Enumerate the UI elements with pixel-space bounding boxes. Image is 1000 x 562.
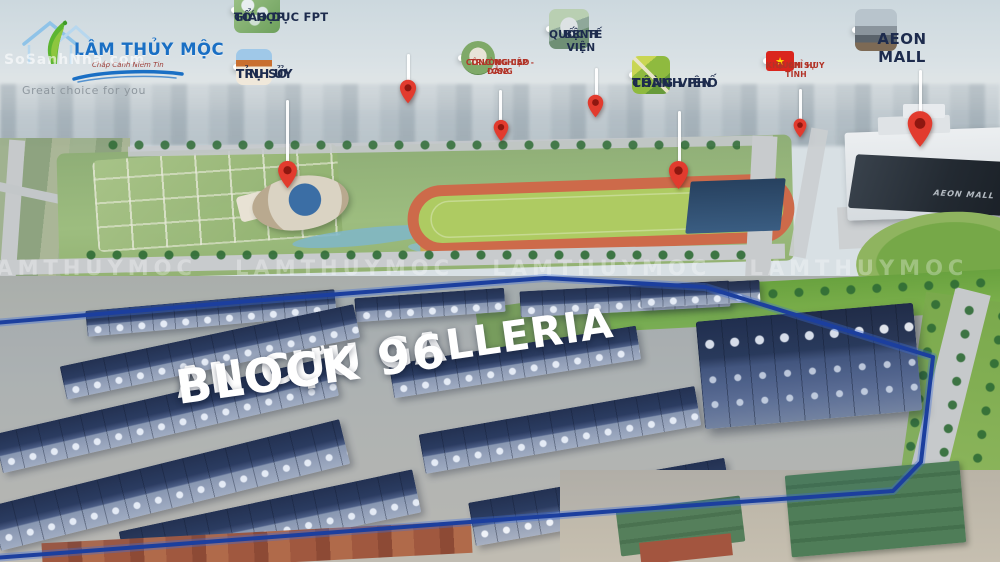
connector-line [919,70,922,113]
landmark-label-provincial-headquarters: TRỤ SỞ TỈNH ỦY [233,64,246,70]
aeon-mall-facade-text: AEON MALL [933,188,996,200]
connector-line [407,54,410,82]
map-pin-icon [587,94,604,118]
glass-building [685,178,785,234]
agency-tagline: Great choice for you [22,84,146,97]
connector-line [286,100,289,162]
map-pin-icon [277,160,298,189]
landmark-label-industrial-college: TRƯỜNG CAO ĐẲNG CÔNG NGHIỆP - CS2 [458,55,471,61]
connector-line [595,68,598,96]
landmark-label-aeon-mall: AEON MALL [852,27,865,33]
landmark-label-fpt-education-complex: TỔ HỢP GIÁO DỤC FPT [231,7,244,13]
landmark-label-city-park: CÔNG VIÊN THÀNH PHỐ [629,72,642,78]
aerial-photo-scene: AEON MALL LAMTHUYMOC LAMTHUYMOC LAMTHUYM… [0,0,1000,562]
connector-line [799,89,802,120]
connector-line [499,90,502,121]
tree-row [100,138,740,151]
map-pin-icon [399,79,417,104]
map-pin-icon [493,119,509,142]
map-pin-icon [668,160,689,190]
connector-line [678,111,681,163]
aeon-mall-glass-facade: AEON MALL [848,154,1000,216]
landmark-label-military-command: ★ KHU CHỈ HUY QUÂN SỰ TỈNH [763,58,776,64]
watermark-band: LAMTHUYMOC LAMTHUYMOC LAMTHUYMOC LAMTHUY… [0,256,1000,280]
map-pin-icon [793,118,807,138]
map-pin-icon [906,110,934,148]
shophouse-corner-block [696,303,923,430]
site-watermark: SoSanhNha.com [4,52,145,68]
green-roof-house [785,461,966,558]
swoosh-icon [72,68,184,84]
landmark-label-international-hospital: BỆNH VIỆN QUỐC TẾ [546,26,559,32]
